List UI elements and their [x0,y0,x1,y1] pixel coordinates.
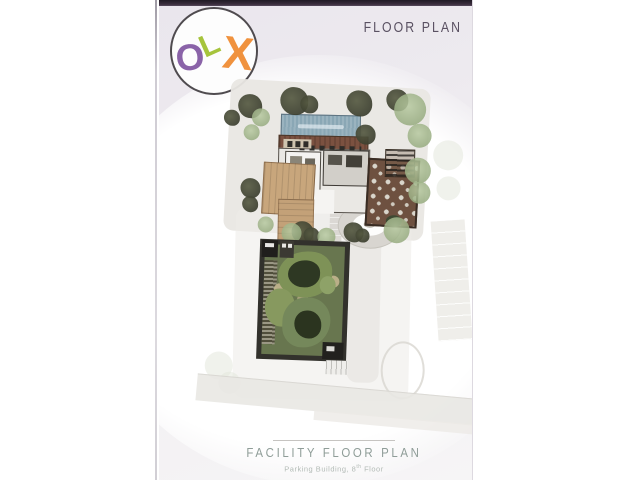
pavilion-window [288,244,292,248]
garden-steps [326,360,348,375]
olx-logo-letter-x: X [220,29,255,78]
lounger [287,140,292,146]
tree [355,124,375,144]
garden-pavilion [280,240,295,257]
furniture [328,155,342,165]
faint-tree [436,176,460,200]
footer-subtitle-suffix: Floor [362,465,384,474]
garden-interior [261,244,345,357]
footer-subtitle: Parking Building, 8th Floor [199,464,469,474]
tree [242,196,258,212]
top-accent-strip [159,0,472,6]
page-title: FLOOR PLAN [364,19,462,36]
sun-loungers [283,139,311,149]
bush [405,157,432,184]
room [323,150,370,187]
page-edge-line [155,0,157,480]
parking-area [431,219,473,341]
planting-bed [319,276,336,295]
scanned-brochure-canvas: O L X FLOOR PLAN [0,0,640,480]
faint-tree [433,140,464,171]
tree [346,90,373,117]
tree [300,95,318,113]
driveway [346,242,381,383]
pavilion-door [326,346,334,351]
bush [407,123,431,147]
footer-divider [273,440,395,441]
garden-courtyard [256,239,350,362]
pavilion-door [265,243,274,247]
tree [224,110,240,126]
floor-plan-artwork [195,75,473,443]
garden-pavilion [322,342,344,360]
planting-bed [281,297,331,349]
footer-title: FACILITY FLOOR PLAN [215,445,453,460]
brochure-page: O L X FLOOR PLAN [159,0,473,480]
furniture [346,155,362,167]
tree [355,228,369,242]
pavilion-window [282,244,286,248]
lounger [295,141,300,147]
lounger [303,141,308,147]
bush [408,181,430,203]
pond [294,310,322,339]
pool-label-placeholder [298,124,344,129]
pond [288,260,321,288]
footer-subtitle-prefix: Parking Building, 8 [284,465,356,474]
garden-pavilion [262,240,279,258]
